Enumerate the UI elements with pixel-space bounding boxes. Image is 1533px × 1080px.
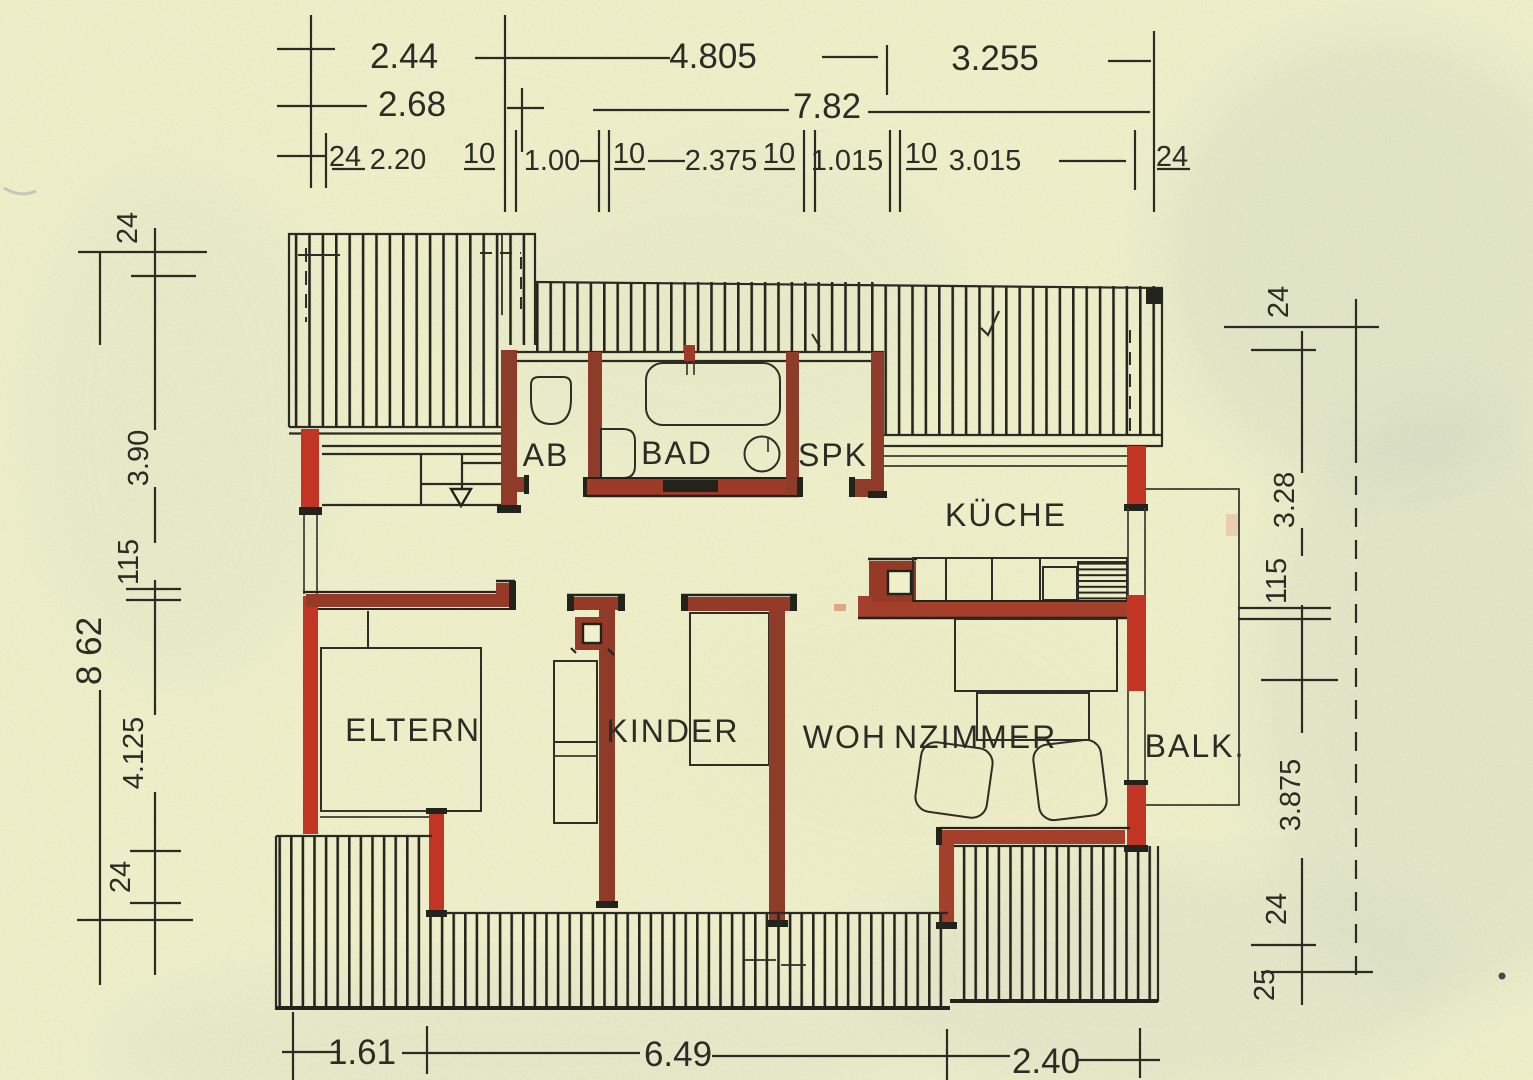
svg-text:2.44: 2.44 xyxy=(370,37,438,76)
svg-text:ELTERN: ELTERN xyxy=(345,712,481,748)
svg-text:BALK.: BALK. xyxy=(1145,728,1246,764)
svg-text:2.375: 2.375 xyxy=(685,145,758,177)
svg-text:25: 25 xyxy=(1249,969,1281,1001)
svg-text:115: 115 xyxy=(1261,558,1293,604)
svg-text:7.82: 7.82 xyxy=(793,87,861,126)
svg-text:8 62: 8 62 xyxy=(70,617,109,685)
svg-text:3.28: 3.28 xyxy=(1269,472,1301,528)
svg-text:24: 24 xyxy=(105,861,137,893)
svg-text:10: 10 xyxy=(905,138,937,170)
svg-text:24: 24 xyxy=(112,212,144,244)
svg-text:3.875: 3.875 xyxy=(1275,759,1307,832)
svg-text:2.20: 2.20 xyxy=(370,144,426,176)
svg-text:1.61: 1.61 xyxy=(328,1033,396,1072)
svg-text:10: 10 xyxy=(613,138,645,170)
svg-text:2.68: 2.68 xyxy=(378,85,446,124)
svg-text:BAD: BAD xyxy=(641,435,713,471)
svg-text:4.805: 4.805 xyxy=(669,37,757,76)
svg-text:KÜCHE: KÜCHE xyxy=(945,497,1067,533)
svg-text:3.255: 3.255 xyxy=(951,39,1039,78)
svg-text:KINDER: KINDER xyxy=(607,713,740,749)
svg-text:1.00: 1.00 xyxy=(524,145,580,177)
svg-text:10: 10 xyxy=(463,138,495,170)
svg-text:1.015: 1.015 xyxy=(811,145,884,177)
svg-text:6.49: 6.49 xyxy=(644,1035,712,1074)
svg-text:SPK: SPK xyxy=(798,437,868,473)
svg-text:4.125: 4.125 xyxy=(118,717,150,790)
svg-text:24: 24 xyxy=(1261,893,1293,925)
svg-text:WOHNZIMMER: WOHNZIMMER xyxy=(803,719,1058,755)
svg-text:3.90: 3.90 xyxy=(123,430,155,486)
svg-text:2.40: 2.40 xyxy=(1012,1042,1080,1080)
svg-text:24: 24 xyxy=(1263,286,1295,318)
svg-text:115: 115 xyxy=(113,539,145,585)
svg-text:3.015: 3.015 xyxy=(949,145,1022,177)
svg-text:10: 10 xyxy=(763,138,795,170)
svg-text:AB: AB xyxy=(523,437,570,473)
